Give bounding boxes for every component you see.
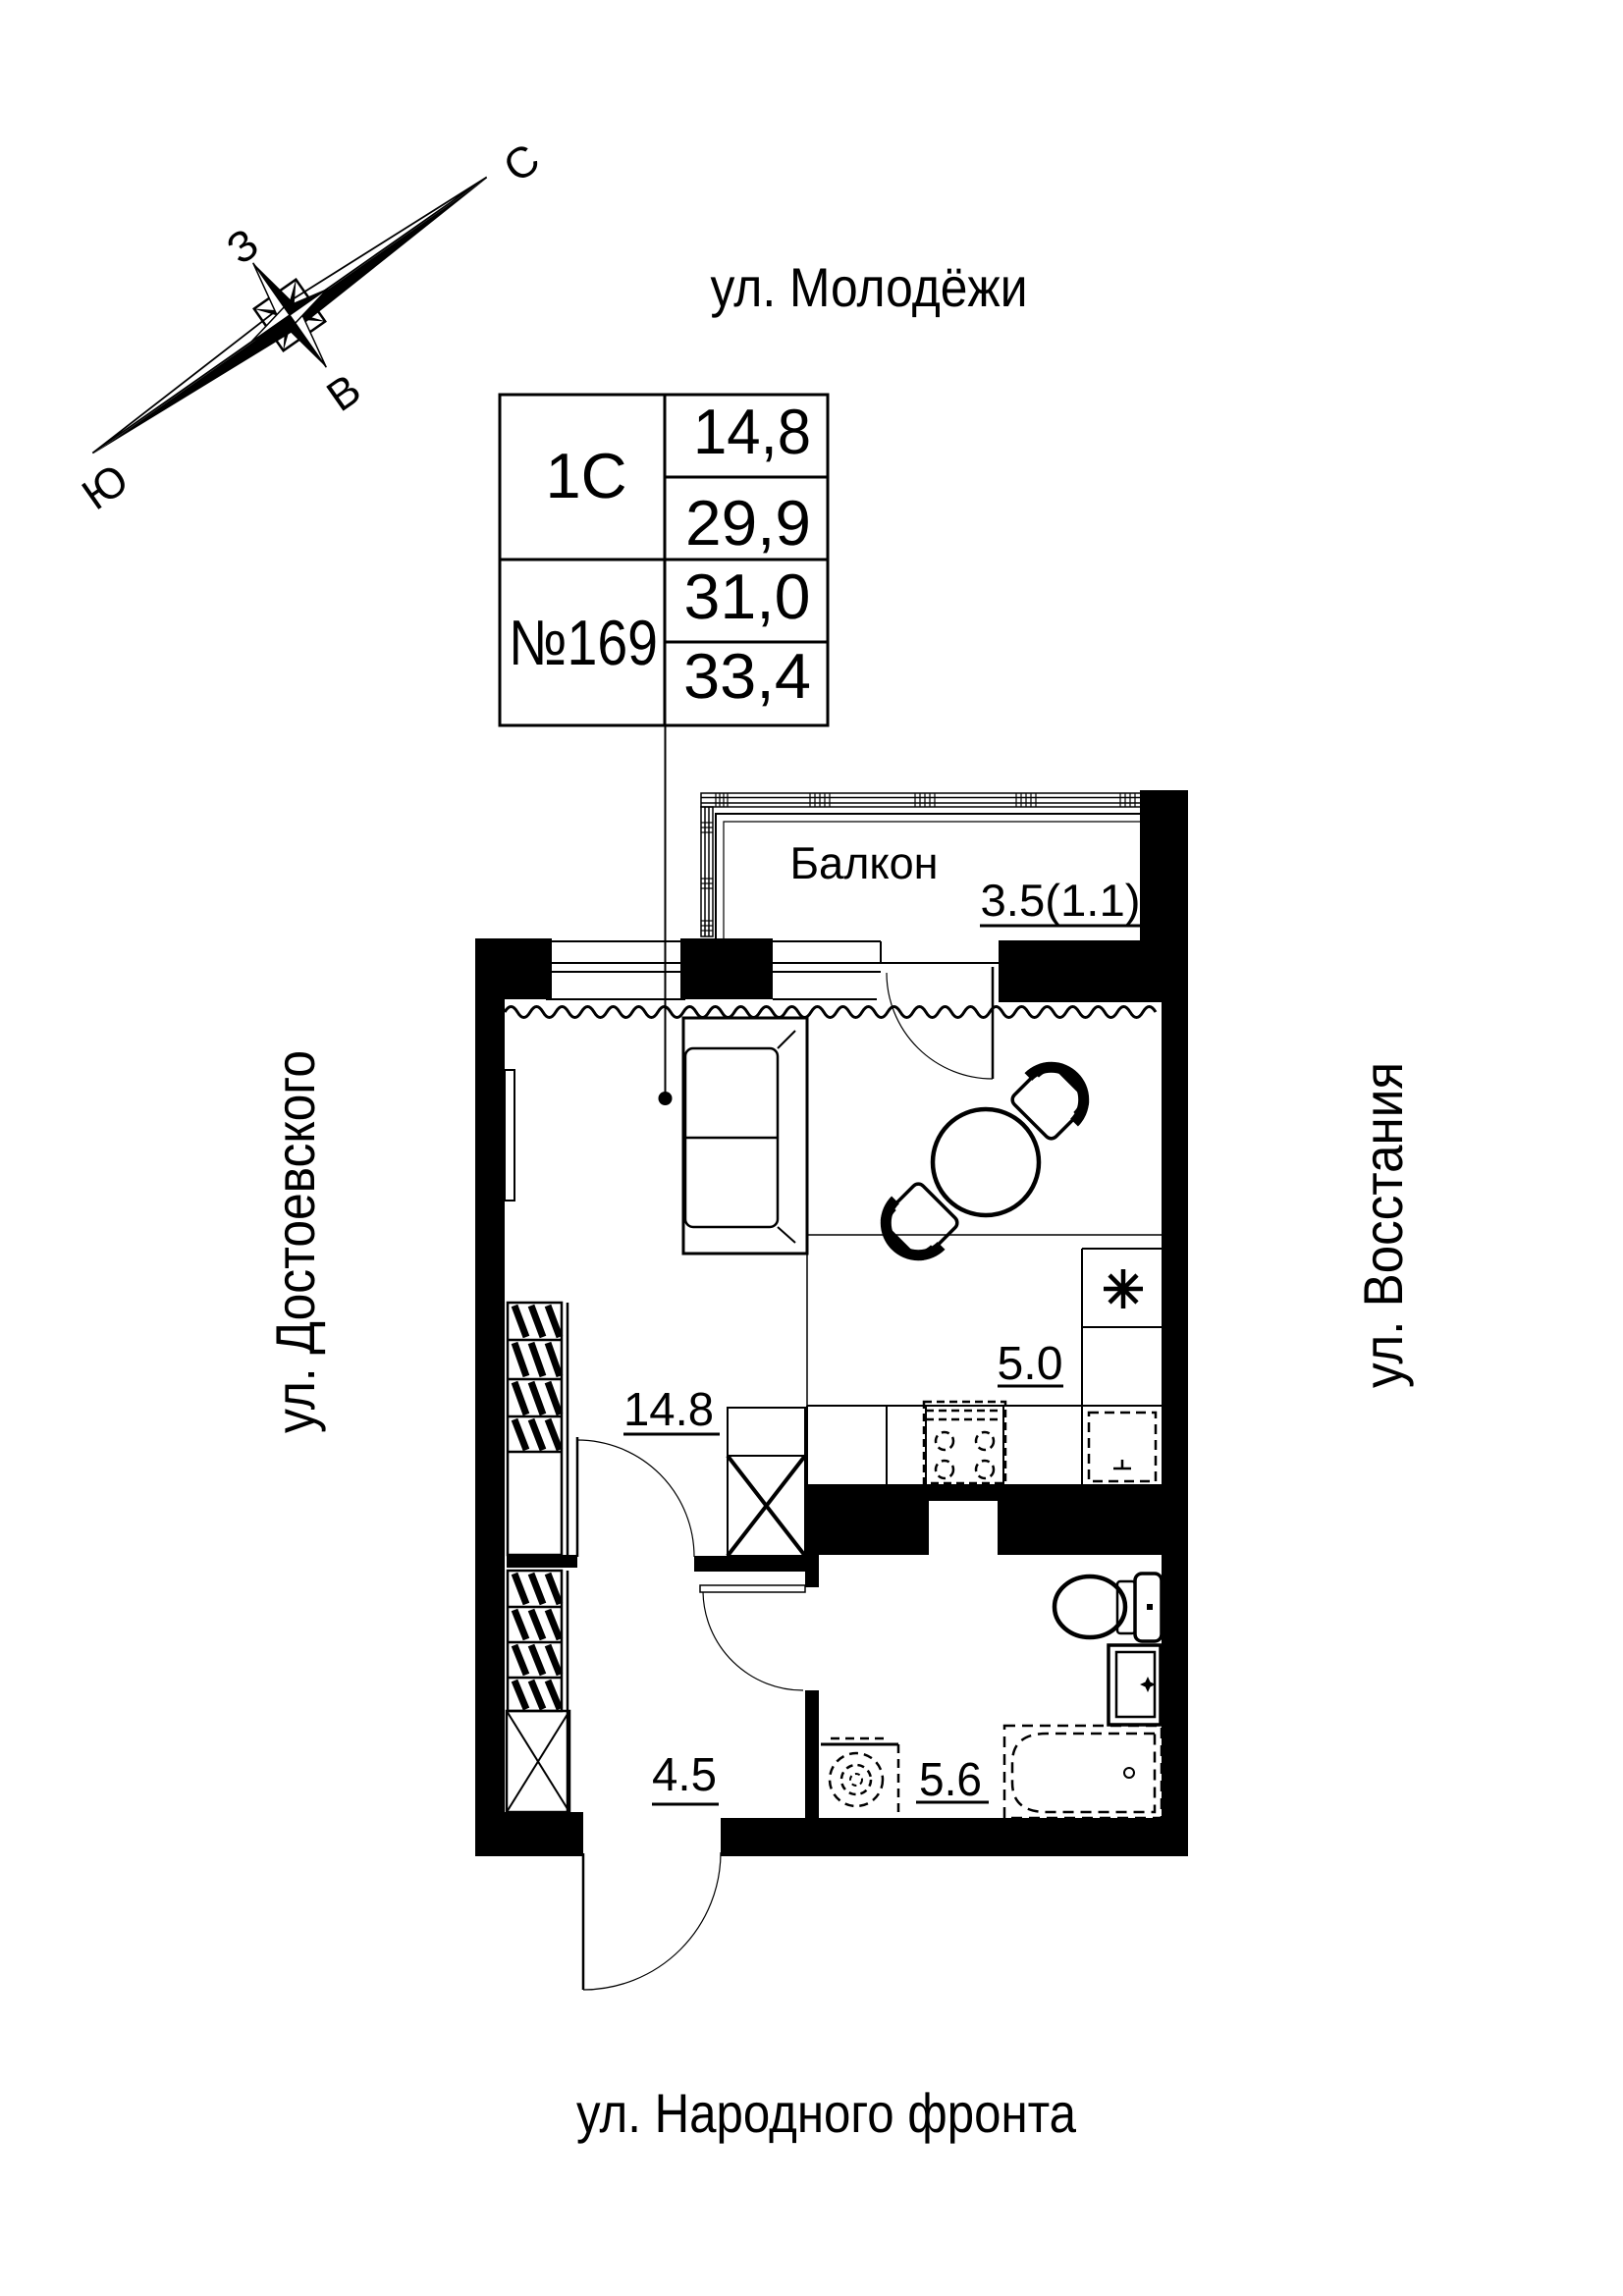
svg-text:14,8: 14,8	[693, 396, 811, 467]
svg-text:1С: 1С	[545, 440, 626, 511]
svg-text:31,0: 31,0	[684, 561, 811, 632]
svg-text:29,9: 29,9	[685, 487, 811, 559]
svg-text:ул. Молодёжи: ул. Молодёжи	[711, 256, 1028, 318]
svg-text:5.6: 5.6	[919, 1754, 982, 1806]
svg-text:3.5(1.1): 3.5(1.1)	[981, 875, 1141, 926]
svg-text:4.5: 4.5	[652, 1749, 717, 1801]
svg-text:33,4: 33,4	[683, 640, 811, 712]
svg-text:ул. Восстания: ул. Восстания	[1352, 1062, 1414, 1388]
svg-text:ул. Достоевского: ул. Достоевского	[264, 1050, 326, 1433]
svg-text:№169: №169	[509, 607, 658, 678]
svg-text:ул. Народного фронта: ул. Народного фронта	[576, 2082, 1077, 2144]
svg-text:Балкон: Балкон	[790, 837, 939, 888]
svg-text:14.8: 14.8	[623, 1384, 714, 1436]
svg-text:5.0: 5.0	[998, 1338, 1063, 1390]
